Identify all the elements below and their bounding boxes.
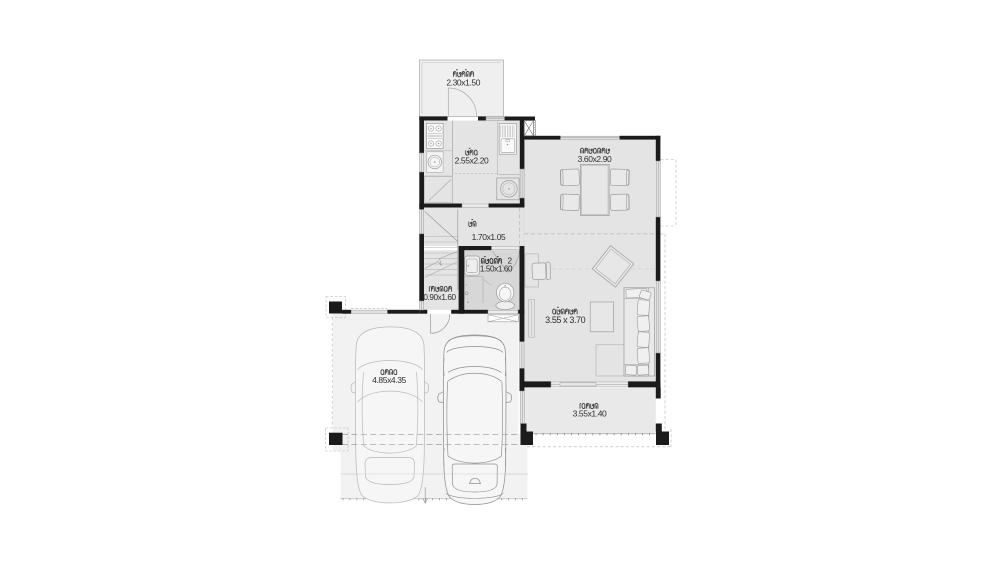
svg-text:3.55 x 3.70: 3.55 x 3.70 — [545, 315, 586, 325]
svg-text:0.90x1.60: 0.90x1.60 — [423, 293, 456, 302]
svg-text:3.60x2.90: 3.60x2.90 — [578, 154, 612, 164]
svg-text:3.55x1.40: 3.55x1.40 — [573, 409, 607, 419]
svg-text:1.50x1.60: 1.50x1.60 — [480, 264, 513, 273]
svg-text:2: 2 — [508, 257, 513, 266]
svg-text:2.30x1.50: 2.30x1.50 — [446, 78, 480, 88]
svg-text:4.85x4.35: 4.85x4.35 — [372, 375, 406, 385]
svg-text:1.70x1.05: 1.70x1.05 — [472, 232, 506, 242]
svg-text:2.55x2.20: 2.55x2.20 — [455, 156, 489, 166]
